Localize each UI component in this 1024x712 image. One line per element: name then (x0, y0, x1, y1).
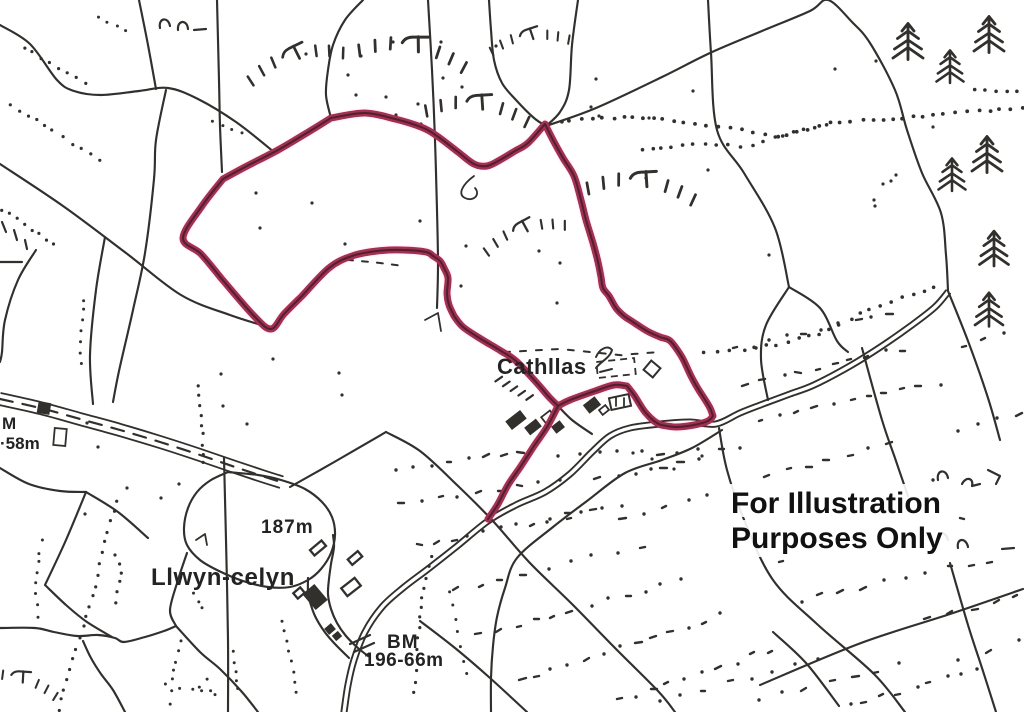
svg-text:187m: 187m (261, 517, 314, 538)
svg-text:Cathllas: Cathllas (497, 354, 587, 379)
svg-text:Llwyn-celyn: Llwyn-celyn (151, 564, 295, 591)
svg-text:Purposes Only: Purposes Only (731, 522, 943, 555)
svg-text:M: M (2, 414, 16, 433)
svg-text:For Illustration: For Illustration (731, 487, 941, 520)
svg-text:·58m: ·58m (0, 434, 40, 453)
svg-text:196-66m: 196-66m (364, 650, 444, 671)
